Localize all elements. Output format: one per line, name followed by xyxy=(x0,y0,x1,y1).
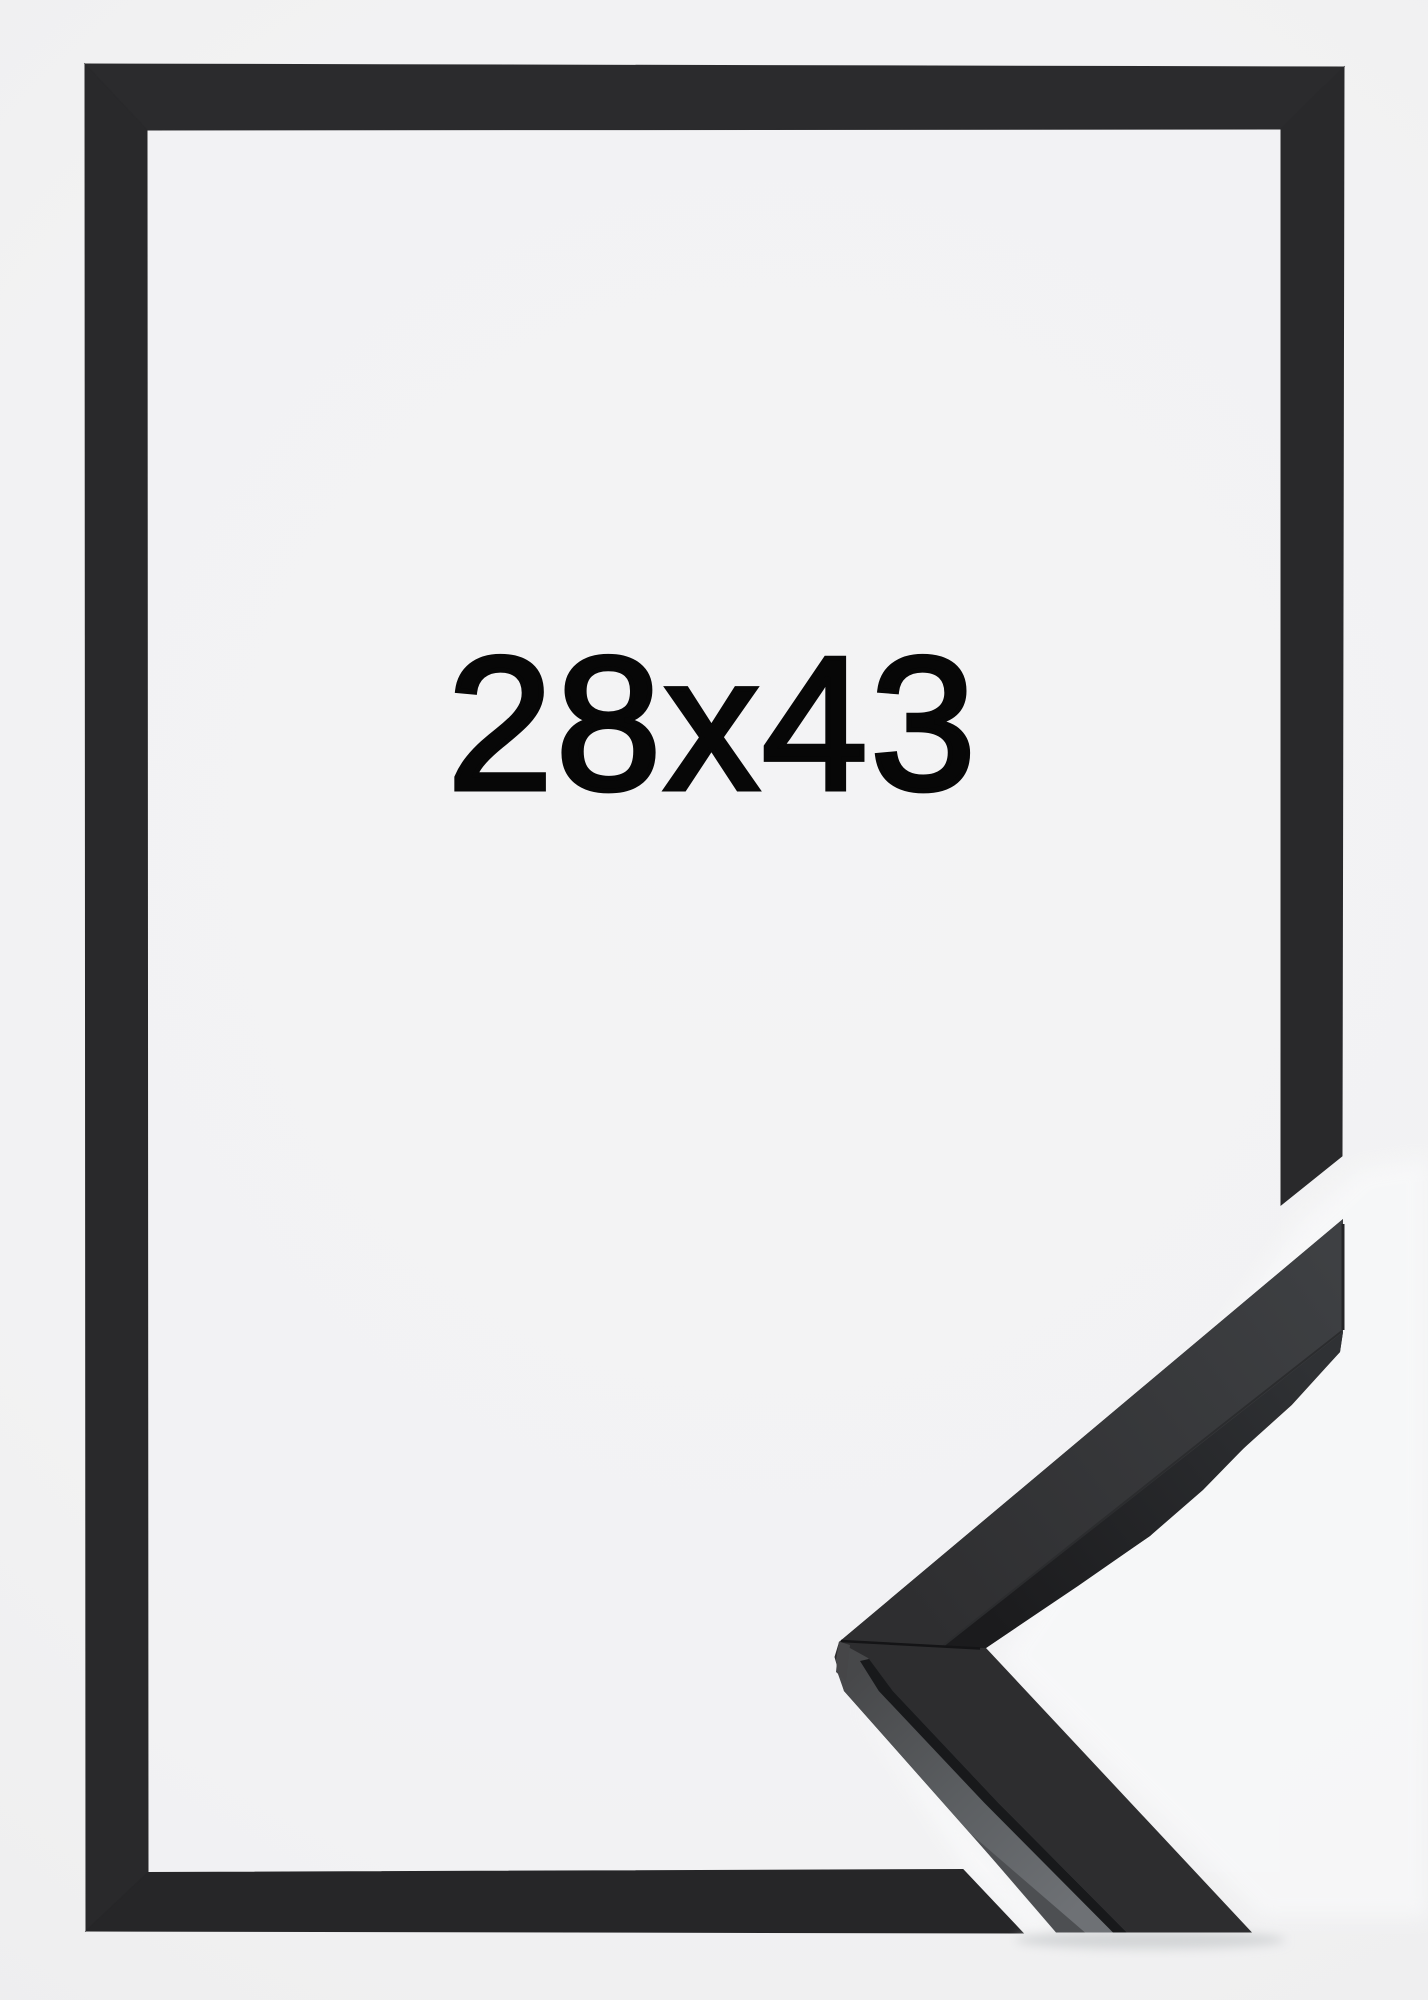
svg-text:28x43: 28x43 xyxy=(447,618,978,830)
